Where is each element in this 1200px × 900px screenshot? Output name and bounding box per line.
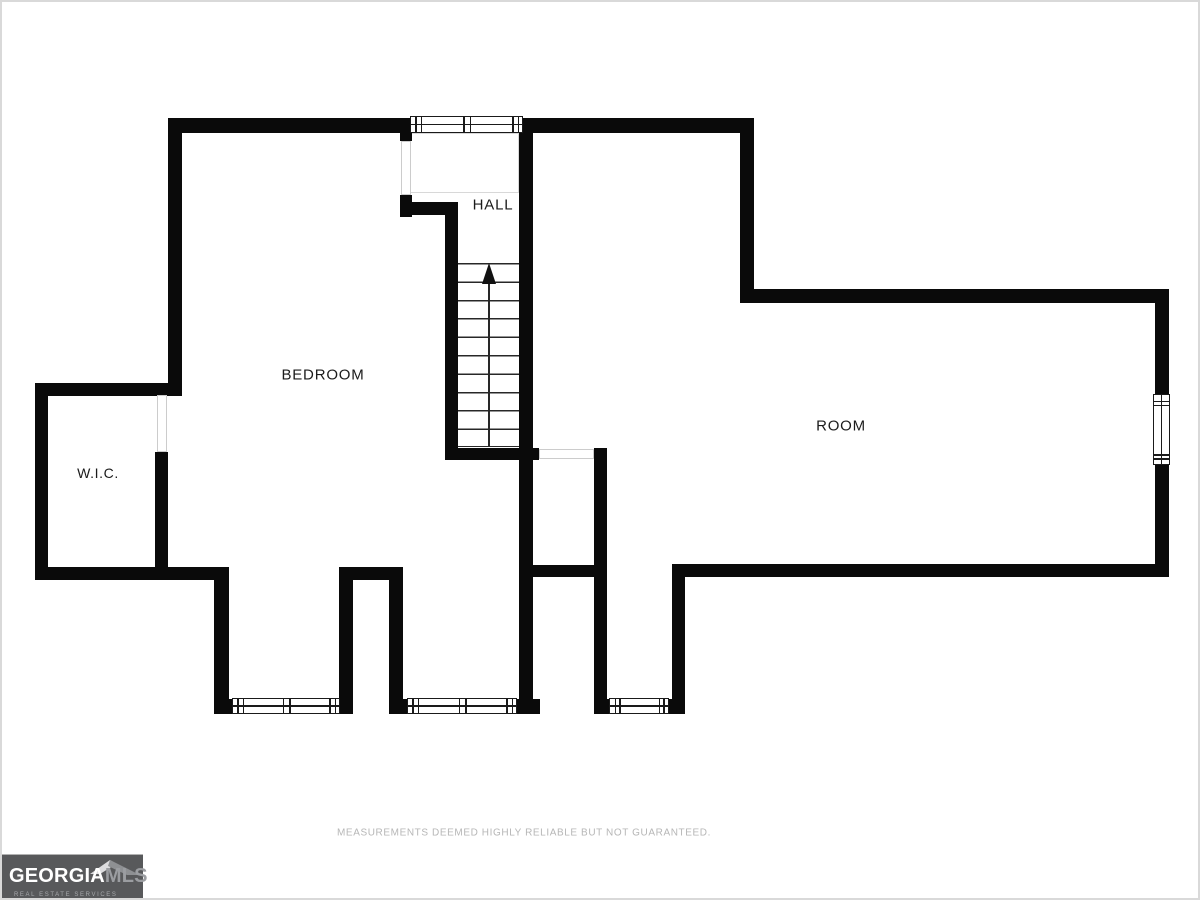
wall-room-south — [672, 564, 1169, 577]
wall-bay3-east — [672, 564, 685, 714]
wall-bay1-east — [339, 567, 353, 714]
window-mullion — [615, 699, 617, 713]
logo-brand-suffix-text: MLS — [105, 865, 148, 887]
wall-corridor-foot — [519, 699, 540, 714]
wall-wic-west — [35, 383, 48, 580]
window-mullion — [506, 699, 508, 713]
window-mullion — [412, 699, 414, 713]
logo-tagline: REAL ESTATE SERVICES — [14, 892, 117, 898]
room-label-room: ROOM — [816, 418, 866, 435]
window-mullion — [512, 699, 514, 713]
window-mullion — [421, 117, 423, 132]
window-mullion — [335, 699, 337, 713]
wall-hall-west-stub — [400, 133, 412, 141]
wall-room-east-upper — [1155, 289, 1169, 394]
window-mullion — [512, 117, 514, 132]
window-mullion — [329, 699, 331, 713]
closet-door-opening — [539, 449, 594, 459]
window-mullion — [418, 699, 420, 713]
window-mullion — [659, 699, 661, 713]
room-label-hall: HALL — [473, 197, 514, 214]
window-mullion — [1154, 405, 1169, 407]
wall-hall-west-corner — [400, 195, 412, 217]
window-mullion — [470, 117, 472, 132]
logo-wordmark: GEORGIAMLS — [9, 866, 148, 886]
window-mullion — [237, 699, 239, 713]
wall-stair-west — [445, 214, 458, 460]
window-mullion — [463, 117, 465, 132]
wall-closet-east — [594, 448, 607, 714]
floor-plan-page: HALL BEDROOM ROOM W.I.C. MEASUREMENTS DE… — [0, 0, 1200, 900]
window-mullion — [283, 699, 285, 713]
window-mullion — [1154, 454, 1169, 456]
room-label-bedroom: BEDROOM — [281, 367, 364, 384]
bay2-window — [407, 698, 517, 714]
wall-room-west-upper — [740, 118, 754, 303]
wall-wic-east — [155, 452, 168, 580]
bay1-window — [232, 698, 340, 714]
disclaimer-text: MEASUREMENTS DEEMED HIGHLY RELIABLE BUT … — [337, 828, 711, 839]
wall-top-left — [168, 118, 410, 133]
wall-closet-south — [527, 565, 607, 577]
hall-dormer-outline — [407, 133, 519, 193]
georgia-mls-logo: GEORGIAMLS REAL ESTATE SERVICES — [2, 854, 143, 900]
room-window — [1153, 394, 1170, 465]
logo-brand-text: GEORGIA — [9, 865, 105, 887]
window-mullion — [619, 699, 621, 713]
window-mullion — [415, 117, 417, 132]
wall-stair-bottom — [452, 448, 539, 460]
wall-bay2-west — [389, 567, 403, 714]
window-mullion — [518, 117, 520, 132]
window-mullion — [1154, 458, 1169, 460]
wall-top-right — [523, 118, 754, 133]
wall-stair-east — [519, 118, 533, 702]
bay3-window — [609, 698, 669, 714]
wic-door-opening — [157, 395, 167, 452]
wall-room-north — [740, 289, 1169, 303]
stairs-up-arrow-icon — [482, 263, 496, 284]
bedroom-door-opening — [401, 141, 411, 195]
wall-wic-south — [35, 567, 219, 580]
window-mullion — [459, 699, 461, 713]
stairs-direction-line — [488, 283, 490, 447]
wall-bedroom-west — [168, 118, 182, 395]
window-mullion — [243, 699, 245, 713]
window-mullion — [1154, 401, 1169, 403]
hall-window — [410, 116, 523, 133]
window-mullion — [289, 699, 291, 713]
window-mullion — [465, 699, 467, 713]
window-mullion — [663, 699, 665, 713]
wall-room-east-lower — [1155, 465, 1169, 577]
wall-bay1-west — [214, 567, 229, 714]
room-label-wic: W.I.C. — [77, 465, 119, 481]
